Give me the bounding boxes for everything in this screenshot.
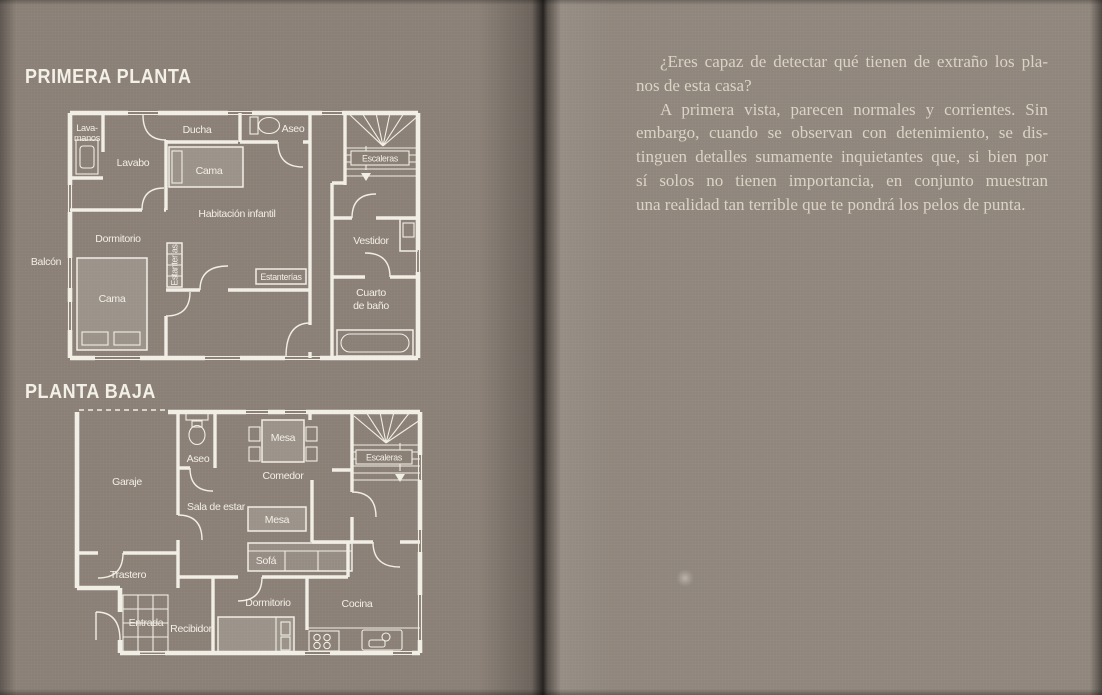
- room-label-garaje: Garaje: [112, 476, 142, 488]
- room-label-aseo: Aseo: [282, 123, 305, 135]
- stairs-icon: [345, 113, 418, 181]
- room-label-aseo: Aseo: [187, 453, 210, 465]
- room-label-mesa-comedor: Mesa: [271, 432, 296, 444]
- text-line: ¿Eres capaz de detectar qué tienen de ex…: [636, 50, 1048, 74]
- room-label-estanterias-izq: Estanterías: [170, 244, 180, 286]
- bed-icon: [218, 617, 294, 653]
- book-spread: { "left_page": { "plan_upper": { "title"…: [0, 0, 1102, 695]
- room-label-sofa: Sofá: [256, 555, 277, 567]
- room-label-comedor: Comedor: [262, 470, 304, 482]
- room-label-cuarto-bano-2: de baño: [353, 300, 389, 312]
- room-label-escaleras: Escaleras: [366, 453, 403, 463]
- text-line: tinguen detalles sumamente inquietantes …: [636, 145, 1048, 169]
- floor-plan-planta-baja: Garaje Aseo Mesa Comedor Escaleras Sala …: [60, 395, 430, 665]
- room-label-cama-infantil: Cama: [196, 165, 223, 177]
- room-label-estanterias-inf: Estanterías: [260, 272, 302, 282]
- room-label-cama: Cama: [99, 293, 126, 305]
- text-line: una realidad tan terrible que te pondrá …: [636, 193, 1048, 217]
- stairs-icon: [352, 412, 420, 482]
- room-label-recibidor: Recibidor: [170, 623, 212, 635]
- room-label-trastero: Trastero: [110, 569, 147, 581]
- washbasin-icon: [76, 140, 98, 174]
- body-text: ¿Eres capaz de detectar qué tienen de ex…: [636, 50, 1048, 217]
- text-line: A primera vista, parecen normales y corr…: [636, 98, 1048, 122]
- room-label-cuarto-bano-1: Cuarto: [356, 287, 386, 299]
- room-label-mesa-sala: Mesa: [265, 514, 290, 526]
- floor-plan-title-primera-planta: PRIMERA PLANTA: [25, 66, 192, 89]
- text-line: embargo, cuando se observan con detenimi…: [636, 121, 1048, 145]
- room-label-dormitorio: Dormitorio: [245, 597, 291, 609]
- text-line: nos de esta casa?: [636, 74, 1048, 98]
- stove-icon: [309, 631, 339, 651]
- room-label-habitacion-infantil: Habitación infantil: [198, 208, 275, 220]
- room-label-dormitorio: Dormitorio: [95, 233, 141, 245]
- room-label-balcon: Balcón: [31, 256, 62, 268]
- room-label-sala-de-estar: Sala de estar: [187, 501, 246, 513]
- floor-plan-primera-planta: Lava- manos Ducha Aseo Escaleras Lavabo …: [25, 100, 430, 370]
- room-label-lavamanos-2: manos: [74, 133, 101, 143]
- room-label-lavabo: Lavabo: [117, 157, 150, 169]
- sink-icon: [362, 630, 402, 650]
- text-line: sí solos no tienen importancia, en conju…: [636, 169, 1048, 193]
- room-label-cocina: Cocina: [342, 598, 373, 610]
- toilet-icon: [186, 413, 208, 445]
- room-label-vestidor: Vestidor: [353, 235, 389, 247]
- bathtub-icon: [337, 330, 413, 356]
- room-label-escaleras: Escaleras: [362, 154, 399, 164]
- toilet-icon: [250, 117, 280, 134]
- room-label-entrada: Entrada: [129, 617, 164, 629]
- wardrobe-icon: [400, 219, 417, 251]
- room-label-ducha: Ducha: [183, 124, 212, 136]
- room-label-lavamanos-1: Lava-: [76, 123, 98, 133]
